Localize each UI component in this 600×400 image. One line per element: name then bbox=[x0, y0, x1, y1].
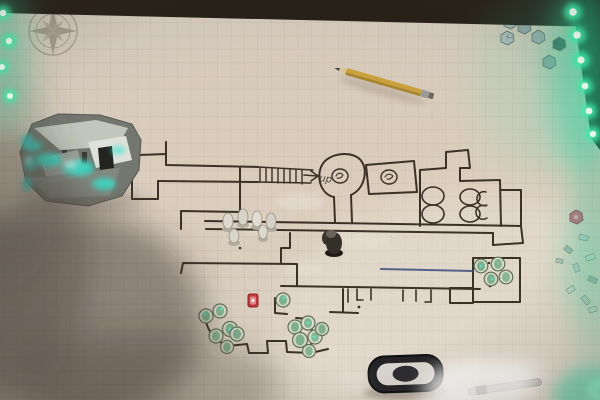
photo-canvas: up bbox=[0, 0, 600, 400]
photo-vignette bbox=[0, 0, 600, 400]
tabletop-photo: up bbox=[0, 0, 600, 400]
